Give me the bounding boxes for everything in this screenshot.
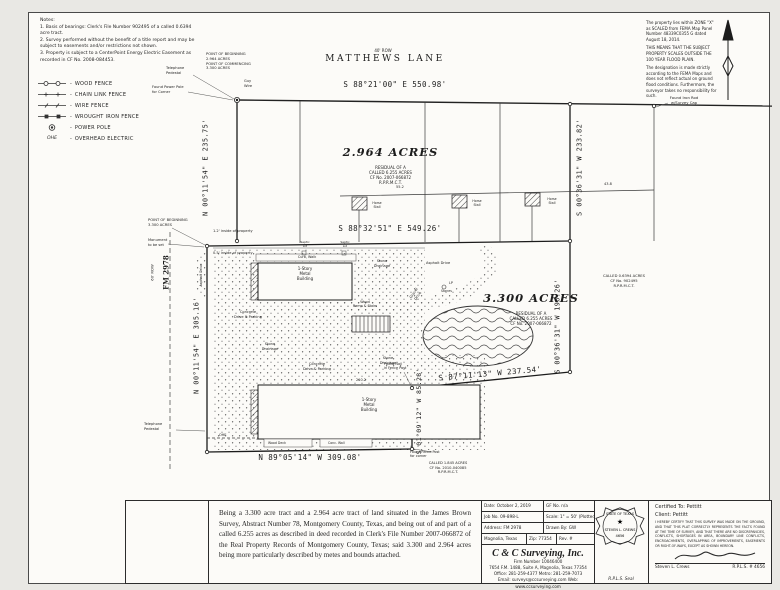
seal-caption: R.P.L.S. Seal <box>595 576 647 581</box>
telephone-pedestal-label: Telephone Pedestal <box>166 66 196 75</box>
flood-note-p1: The property lies within ZONE "X" as SCA… <box>646 20 718 42</box>
tract1-deed-ref: RESIDUAL OF A CALLED 6.255 ACRES CF No. … <box>328 165 453 185</box>
building-dimension: 210.2 <box>356 378 366 383</box>
certification-text: I HEREBY CERTIFY THAT THIS SURVEY WAS MA… <box>655 520 765 549</box>
chain-link-fence-symbol-icon <box>36 90 68 99</box>
tract2-label: 3.300 ACRES RESIDUAL OF A CALLED 6.255 A… <box>466 286 596 331</box>
legend-label: OVERHEAD ELECTRIC <box>75 136 134 142</box>
curb-walk-label: Curb, Walk <box>282 255 332 259</box>
legend-item-overhead-electric: OHE - OVERHEAD ELECTRIC <box>36 133 139 144</box>
zip-field: Zip: 77354 <box>527 534 557 544</box>
date-field: Date: October 2, 2019 <box>482 501 544 511</box>
flood-zone-note: The property lies within ZONE "X" as SCA… <box>646 20 718 102</box>
conc-wall-label: Conc. Wall <box>328 441 345 445</box>
horse-stall-label: Horse Stall <box>541 197 563 205</box>
gf-number-field: GF No. n/a <box>544 501 594 511</box>
fm2978-name: FM 2978 <box>161 243 170 303</box>
horse-stall-3 <box>525 193 540 206</box>
title-row: Date: October 2, 2019 GF No. n/a <box>482 501 594 512</box>
legend-item-wire-fence: - WIRE FENCE <box>36 100 139 111</box>
ohe-label: OHE <box>219 433 226 437</box>
legend-dash: - <box>70 103 72 109</box>
horse-stall-label: Horse Stall <box>466 199 488 207</box>
wood-ramp-label: Wood Ramp & Stairs <box>330 300 400 309</box>
concrete-drive-label: Concrete Drive & Parking <box>226 310 270 319</box>
note-item: 1. Basis of bearings: Clerk's File Numbe… <box>40 25 200 37</box>
survey-notes: Notes: 1. Basis of bearings: Clerk's Fil… <box>40 18 200 65</box>
fence-dimension: 43.8 <box>604 182 612 187</box>
seal-star: ★ <box>617 518 623 526</box>
title-row: Job No. 09-898-L Scale: 1" = 50' (Plotte… <box>482 512 594 523</box>
horse-stall-label: Horse Stall <box>366 201 388 209</box>
north-arrow-icon <box>723 20 733 100</box>
surveyor-signature <box>655 549 765 562</box>
legend-item-wrought-iron-fence: - WROUGHT IRON FENCE <box>36 111 139 122</box>
building-a-porch <box>251 263 258 300</box>
septic-lid-label: Septic Lid <box>336 241 354 249</box>
seal-number-text: 4656 <box>616 534 625 538</box>
scale-field: Scale: 1" = 50' (Plotted) <box>544 512 594 522</box>
legal-description: Being a 3.300 acre tract and a 2.964 acr… <box>209 501 481 583</box>
flood-note-p3: The designation is made strictly accordi… <box>646 65 718 99</box>
notes-title: Notes: <box>40 18 200 24</box>
client: Client: Pettitt <box>655 512 765 518</box>
address-field: Address: FM 2978 <box>482 523 544 533</box>
note-item: 2. Survey performed without the benefit … <box>40 38 200 50</box>
tract2-deed-ref: RESIDUAL OF A CALLED 6.255 ACRES CF No. … <box>466 311 596 326</box>
lp-tank-label: LP <box>449 281 453 285</box>
bearing-west-lower: N 00°11'54" E 305.16' <box>192 286 201 406</box>
company-block: C & C Surveying, Inc. Firm Number 100464… <box>482 545 594 590</box>
bearing-west-upper: N 00°11'54" E 235.75' <box>201 108 210 228</box>
horse-stall-2 <box>452 195 467 208</box>
job-number-field: Job No. 09-898-L <box>482 512 544 522</box>
bearing-jog: S 01°09'12" W 85.28' <box>415 366 423 456</box>
legend-dash: - <box>70 125 72 131</box>
signer-name: Steven L. Crews <box>655 565 690 570</box>
legend-label: POWER POLE <box>75 125 111 131</box>
guy-wire-label: Guy Wire <box>244 79 264 88</box>
legend-item-wood-fence: - WOOD FENCE <box>36 78 139 89</box>
concrete-drive-label: Concrete Drive & Parking <box>295 362 339 371</box>
legend-label: WIRE FENCE <box>75 103 109 109</box>
tract1-area: 2.964 ACRES <box>328 145 453 160</box>
telephone-pedestal-label: Telephone Pedestal <box>144 422 174 431</box>
revision-field: Rev. # <box>557 534 594 544</box>
horse-stall-1 <box>352 197 367 210</box>
legend-item-power-pole: - POWER POLE <box>36 122 139 133</box>
wrought-iron-fence-symbol-icon <box>36 112 68 121</box>
title-row: Magnolia, Texas Zip: 77354 Rev. # <box>482 534 594 545</box>
found-power-pole-label: Found Power Pole for Corner <box>152 85 192 94</box>
company-name: C & C Surveying, Inc. <box>482 548 594 559</box>
matthews-row-label: 40' ROW <box>348 48 418 53</box>
adjoiner-south-label: CALLED 1.845 ACRES CF No. 2010-040085 R.… <box>420 461 476 475</box>
fence-offset-note: 1.2' inside of property <box>213 229 293 234</box>
stone-drainage-label: Stone Drainage <box>362 259 402 268</box>
power-pole-symbol-icon <box>36 123 68 132</box>
legend: - WOOD FENCE - CHAIN LINK FENCE - WIRE F… <box>36 78 139 144</box>
point-of-beginning-2964: POINT OF BEGINNING 2.964 ACRES POINT OF … <box>206 52 251 71</box>
found-fence-post-label: Found Fence Post for corner <box>410 450 454 459</box>
wood-fence-symbol-icon <box>36 79 68 88</box>
legend-label: WROUGHT IRON FENCE <box>75 114 139 120</box>
asphalt-drive-label: Asphalt Drive <box>426 261 450 266</box>
drawn-by-field: Drawn By: GW <box>544 523 594 533</box>
fence-offset-note: 0.5' inside of property <box>213 251 293 256</box>
surveyor-seal-icon: STATE OF TEXAS ★ STEVEN L. CREWS 4656 <box>595 501 647 557</box>
note-item: 3. Property is subject to a CenterPoint … <box>40 51 200 63</box>
fm2978-row-label: 60' ROW <box>151 252 156 292</box>
scanned-survey-plat: { "notes": { "title": "Notes:", "items":… <box>0 0 780 588</box>
fence-dimension: 55.2 <box>396 185 404 190</box>
legend-dash: - <box>70 92 72 98</box>
legend-dash: - <box>70 136 72 142</box>
stone-drainage-label: Stone Drainage <box>248 342 292 351</box>
legend-label: CHAIN LINK FENCE <box>75 92 127 98</box>
building-b-porch <box>251 390 258 434</box>
legend-dash: - <box>70 81 72 87</box>
tract1-label: 2.964 ACRES RESIDUAL OF A CALLED 6.255 A… <box>328 140 453 190</box>
seal-state-text: STATE OF TEXAS <box>606 512 634 516</box>
wire-fence-symbol-icon <box>36 101 68 110</box>
bearing-east-upper: S 00°36'31" W 233.82' <box>575 108 584 228</box>
matthews-lane-name: MATTHEWS LANE <box>310 54 460 66</box>
bearing-south: N 89°05'14" W 309.08' <box>205 453 415 463</box>
tract2-area: 3.300 ACRES <box>466 291 596 306</box>
bearing-matthews-lane: S 88°21'00" E 550.98' <box>305 80 485 90</box>
point-of-beginning-3300: POINT OF BEGINNING 3.300 ACRES <box>148 218 206 228</box>
signature-line: Steven L. Crews R.P.L.S. # 4656 <box>655 563 765 570</box>
building-a-label: 1-Story Metal Building <box>263 266 347 282</box>
title-row: Address: FM 2978 Drawn By: GW <box>482 523 594 534</box>
septic-lid-label: Septic Lid <box>296 241 314 249</box>
surveyor-seal-box: STATE OF TEXAS ★ STEVEN L. CREWS 4656 R.… <box>595 501 647 583</box>
legend-label: WOOD FENCE <box>75 81 113 87</box>
stones-label: Stones <box>441 289 452 293</box>
title-block: Date: October 2, 2019 GF No. n/a Job No.… <box>482 501 594 583</box>
bearing-mid-line: S 88°32'51" E 549.26' <box>295 224 485 234</box>
seal-name-text: STEVEN L. CREWS <box>605 528 636 532</box>
legend-item-chain-link-fence: - CHAIN LINK FENCE <box>36 89 139 100</box>
building-b-label: 1-Story Metal Building <box>327 397 411 413</box>
wood-deck-label: Wood Deck <box>268 441 286 445</box>
flood-note-p2: THIS MEANS THAT THE SUBJECT PROPERTY SCA… <box>646 45 718 62</box>
certification-box: Certified To: Pettitt Client: Pettitt I … <box>649 501 771 583</box>
legend-dash: - <box>70 114 72 120</box>
certified-to: Certified To: Pettitt <box>655 504 765 510</box>
signer-rpls: R.P.L.S. # 4656 <box>732 565 765 570</box>
ohe-symbol: OHE <box>36 136 68 141</box>
title-block-band: Being a 3.300 acre tract and a 2.964 acr… <box>125 500 772 584</box>
found-iron-rod-label: Found Iron Rod w/Survey Cap <box>660 96 708 106</box>
adjoiner-east-label: CALLED 0.6394 ACRES CF No. 902495 R.P.R.… <box>592 274 656 288</box>
city-field: Magnolia, Texas <box>482 534 527 544</box>
